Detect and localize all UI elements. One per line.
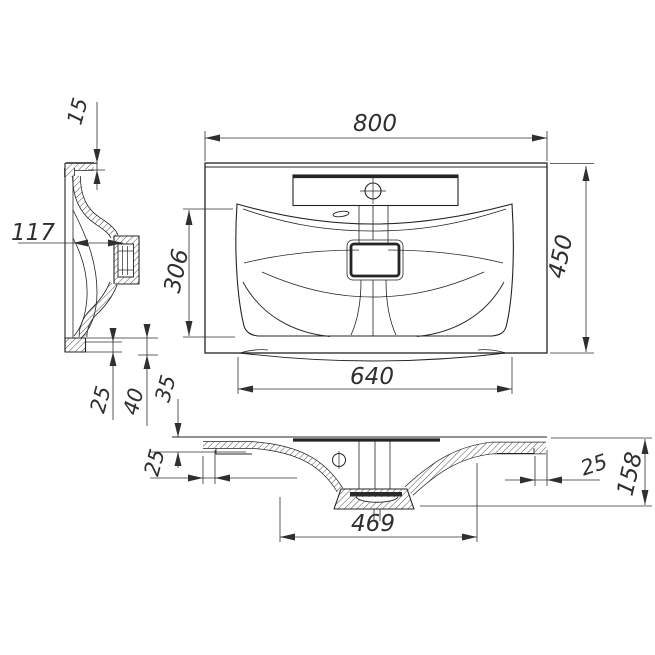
arrowhead <box>462 534 477 541</box>
dimension-lines <box>18 102 652 542</box>
arrowhead <box>215 475 230 482</box>
arrowhead <box>547 477 562 484</box>
front-faucet-hole <box>333 451 346 469</box>
arrowhead <box>186 210 193 225</box>
dim-label-front-bowl-span: 469 <box>351 511 395 537</box>
arrowhead <box>280 534 295 541</box>
arrowhead <box>583 166 590 181</box>
technical-drawing-page: 800 450 306 640 469 117 15 25 40 35 25 2… <box>0 0 655 655</box>
arrowhead <box>238 386 253 393</box>
dim-label-basin-width: 640 <box>350 364 394 390</box>
dim-label-plan-depth: 450 <box>544 232 579 280</box>
basin-outline <box>236 204 514 336</box>
faucet-hole <box>360 178 386 204</box>
arrowhead <box>583 337 590 352</box>
plan-drain <box>351 244 399 276</box>
dim-label-side-foot-small: 25 <box>86 384 116 416</box>
arrowhead <box>520 477 535 484</box>
dim-label-front-left-inset: 25 <box>140 447 170 479</box>
plan-outline <box>205 163 547 353</box>
dim-label-side-rim-thickness: 15 <box>63 95 93 127</box>
arrowhead <box>497 386 512 393</box>
dim-label-side-depth: 117 <box>11 220 55 246</box>
arrowhead <box>144 355 151 369</box>
arrowhead <box>642 439 649 454</box>
arrowhead <box>205 135 220 142</box>
arrowhead <box>175 423 182 437</box>
arrowhead <box>188 475 203 482</box>
arrowhead <box>642 490 649 505</box>
arrowhead <box>186 321 193 336</box>
plan-drain-outer <box>347 240 403 280</box>
arrowhead <box>94 149 101 163</box>
arrowhead <box>73 240 88 247</box>
dim-label-plan-width: 800 <box>353 111 397 137</box>
overflow-slot <box>333 210 350 217</box>
arrowhead <box>110 328 117 342</box>
arrowhead <box>144 324 151 338</box>
side-view <box>65 163 139 352</box>
arrowhead <box>532 135 547 142</box>
dim-label-side-foot-large: 40 <box>119 386 149 418</box>
arrowhead <box>110 352 117 366</box>
sink-technical-drawing: 800 450 306 640 469 117 15 25 40 35 25 2… <box>0 0 655 655</box>
arrowhead <box>175 452 182 466</box>
dim-label-front-rim-drop: 35 <box>151 373 181 405</box>
plan-back-ledge <box>293 175 458 206</box>
dim-label-front-right-inset: 25 <box>578 449 611 480</box>
arrowhead <box>94 170 101 184</box>
plan-view <box>205 163 547 361</box>
